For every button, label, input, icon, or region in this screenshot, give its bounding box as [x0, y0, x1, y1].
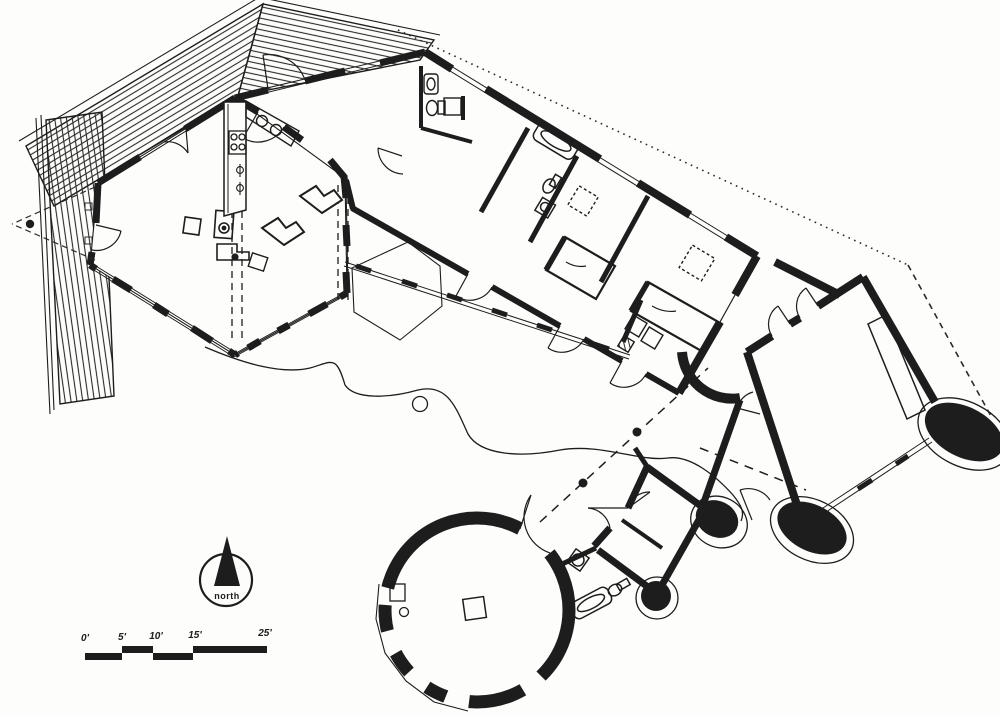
- hexagonal-deck: [352, 242, 442, 340]
- scale-bar: 0' 5' 10' 15' 25': [81, 628, 272, 660]
- tower-center-post: [463, 597, 487, 621]
- north-arrow-triangle: [214, 536, 240, 586]
- dotted-table: [679, 245, 715, 281]
- half-bath-fixtures: [424, 74, 461, 116]
- scale-tick-0: 0': [81, 633, 90, 644]
- guest-suite: [567, 467, 770, 621]
- wing-south-wall: [352, 208, 679, 393]
- wing-north-wall: [425, 52, 757, 256]
- north-arrow: north: [200, 536, 252, 606]
- dotted-table: [568, 186, 598, 216]
- garden-circle: [413, 397, 428, 412]
- scale-tick-5: 5': [118, 632, 127, 643]
- wing-partitions: [481, 128, 648, 342]
- round-tower: [376, 495, 596, 711]
- curved-masonry-corner: [641, 581, 671, 611]
- studio-nw-wall: [747, 336, 772, 352]
- guest-ne-wall: [647, 467, 705, 509]
- guest-se-wall: [658, 518, 700, 592]
- survey-point-dot: [26, 220, 34, 228]
- floor-plan-sheet: north 0' 5' 10' 15' 25': [0, 0, 1000, 716]
- bed: [546, 237, 615, 299]
- studio-room: [737, 262, 1000, 577]
- gallery-glazed-wall: [344, 262, 630, 359]
- north-label: north: [214, 591, 240, 601]
- studio-sw-wall: [747, 352, 797, 505]
- garden-edge-curve: [205, 347, 743, 521]
- bedroom-wing: [352, 50, 757, 393]
- curved-masonry-corner: [759, 383, 1000, 576]
- guest-sw-wall: [598, 550, 652, 590]
- floor-plan-drawing: north 0' 5' 10' 15' 25': [0, 0, 1000, 716]
- scale-tick-25: 25': [257, 628, 272, 639]
- scale-tick-10: 10': [149, 631, 163, 642]
- scale-tick-15: 15': [188, 630, 202, 641]
- curved-wall: [682, 352, 740, 399]
